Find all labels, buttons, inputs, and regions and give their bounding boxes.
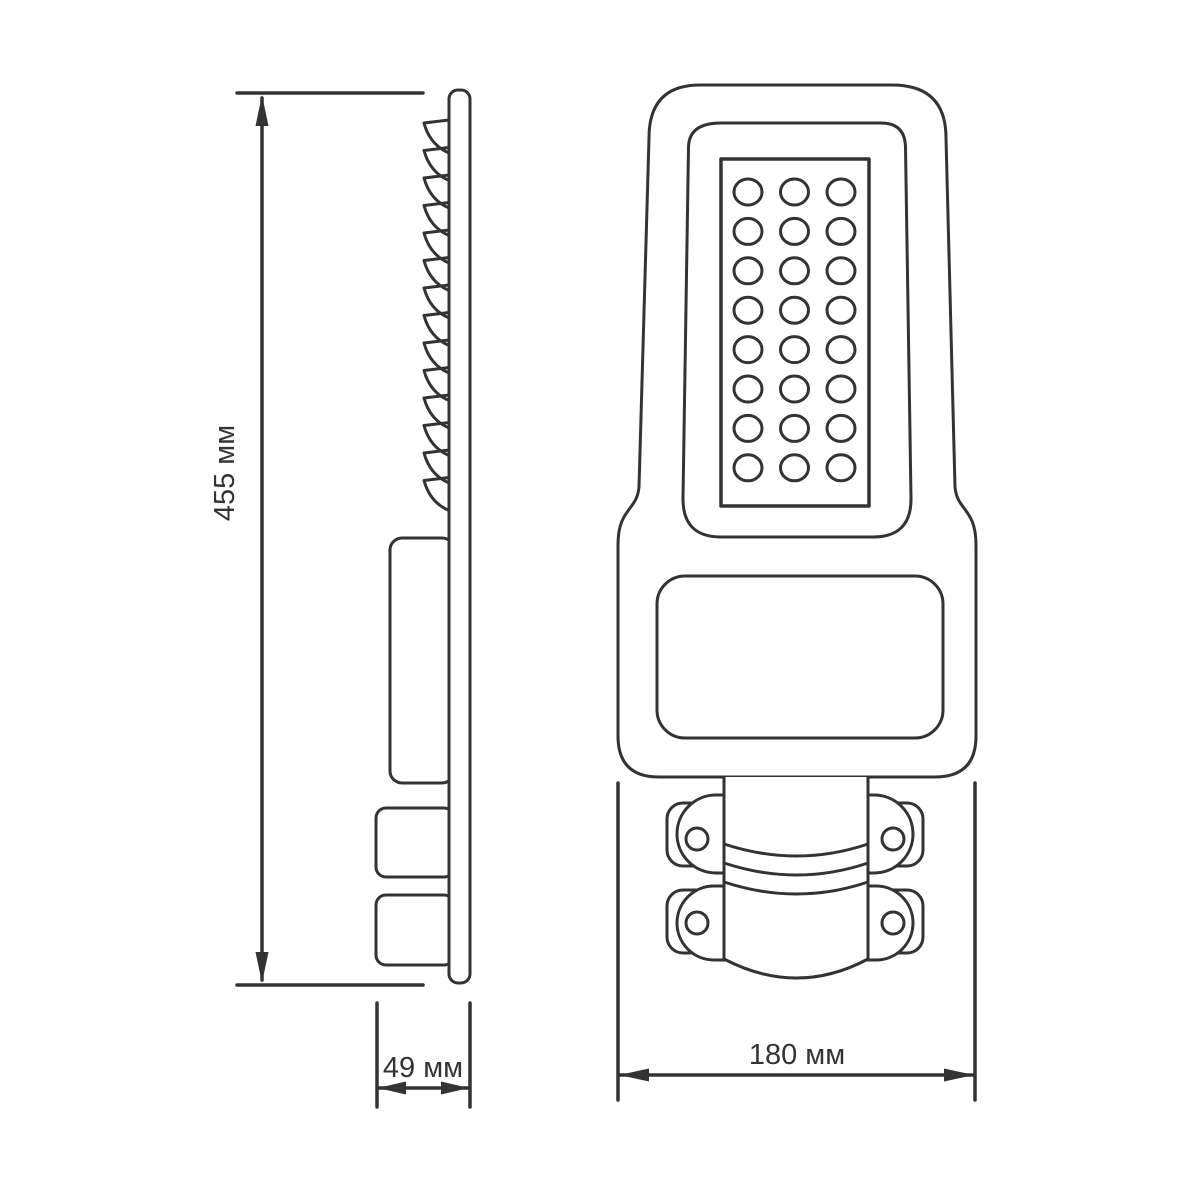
front-body-outline xyxy=(618,85,976,777)
side-clamp-lower xyxy=(376,895,454,965)
side-clamp-upper xyxy=(376,808,454,877)
screw-hole xyxy=(882,828,904,850)
drawing-background xyxy=(0,0,1200,1200)
side-body-slab xyxy=(449,90,470,983)
screw-hole xyxy=(686,912,708,934)
screw-hole xyxy=(686,828,708,850)
drawing-svg: 455 мм 49 мм 180 мм xyxy=(0,0,1200,1200)
side-driver-box xyxy=(390,538,454,783)
depth-dimension-label: 49 мм xyxy=(383,1052,463,1084)
width-dimension-label: 180 мм xyxy=(749,1039,845,1071)
front-view xyxy=(618,85,976,978)
street-light-dimension-drawing: 455 мм 49 мм 180 мм xyxy=(0,0,1200,1200)
height-dimension-label: 455 мм xyxy=(209,425,241,521)
screw-hole xyxy=(882,912,904,934)
mount-tube xyxy=(724,777,868,978)
